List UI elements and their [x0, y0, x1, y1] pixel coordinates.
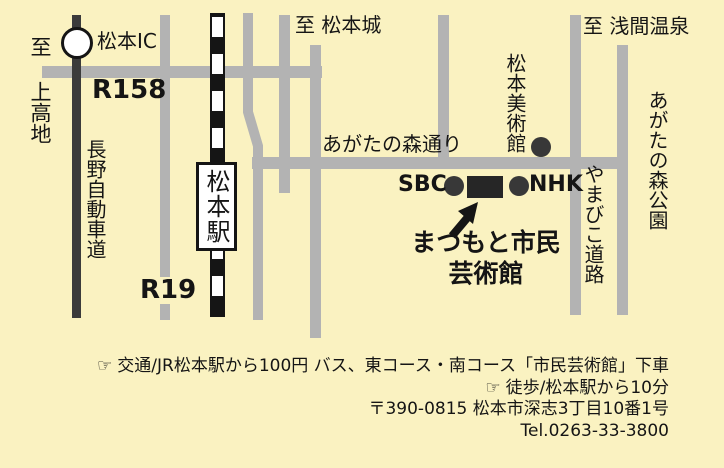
route158-label: R158 — [92, 77, 166, 104]
pointing-hand-icon: ☞ — [97, 356, 112, 378]
matsumoto-station-label: 松本駅 — [199, 169, 234, 244]
road-to-matsumoto-castle — [310, 45, 321, 338]
nagano-expressway-line — [72, 15, 81, 318]
venue-name: まつもと市民 芸術館 — [366, 227, 606, 289]
sbc-label: SBC — [398, 173, 447, 196]
nagano-expressway-label: 長野自動車道 — [84, 139, 105, 259]
access-map: 松本駅 至 上高地 松本IC R158 長野自動車道 R19 至 松本城 あがた… — [0, 0, 724, 468]
venue-name-line2: 芸術館 — [366, 258, 606, 289]
to-asama-onsen-label: 至 浅間温泉 — [583, 16, 689, 37]
nhk-marker — [509, 176, 529, 196]
access-info: ☞交通/JR松本駅から100円 バス、東コース・南コース「市民芸術館」下車 ☞徒… — [97, 356, 669, 442]
art-museum-marker — [531, 137, 551, 157]
access-walk-text: 徒歩/松本駅から10分 — [506, 378, 669, 398]
venue-name-line1: まつもと市民 — [366, 227, 606, 258]
access-walk-line: ☞徒歩/松本駅から10分 — [485, 378, 669, 400]
access-bus-text: 交通/JR松本駅から100円 バス、東コース・南コース「市民芸術館」下車 — [117, 356, 669, 376]
access-bus-line: ☞交通/JR松本駅から100円 バス、東コース・南コース「市民芸術館」下車 — [97, 356, 669, 378]
agatanomori-park-label: あがたの森公園 — [646, 90, 667, 230]
yamabiko-road-line — [617, 45, 628, 315]
to-kamikochi-label: 至 上高地 — [29, 36, 51, 144]
agatanomori-street-label: あがたの森通り — [322, 134, 462, 155]
address-line: 〒390-0815 松本市深志3丁目10番1号 — [368, 399, 669, 421]
to-matsumoto-castle-label: 至 松本城 — [295, 15, 381, 36]
sbc-marker — [444, 176, 464, 196]
matsumoto-station-box: 松本駅 — [196, 162, 237, 251]
station-east-road — [248, 13, 258, 320]
venue-building-marker — [467, 176, 503, 198]
matsumoto-art-museum-label: 松本美術館 — [504, 53, 525, 153]
route19-label: R19 — [137, 277, 199, 304]
pointing-hand-icon: ☞ — [485, 378, 500, 400]
city-road-a — [279, 15, 290, 193]
matsumoto-ic-marker — [61, 27, 93, 59]
tel-line: Tel.0263-33-3800 — [520, 421, 669, 443]
matsumoto-ic-label: 松本IC — [97, 31, 157, 52]
nhk-label: NHK — [529, 173, 583, 196]
